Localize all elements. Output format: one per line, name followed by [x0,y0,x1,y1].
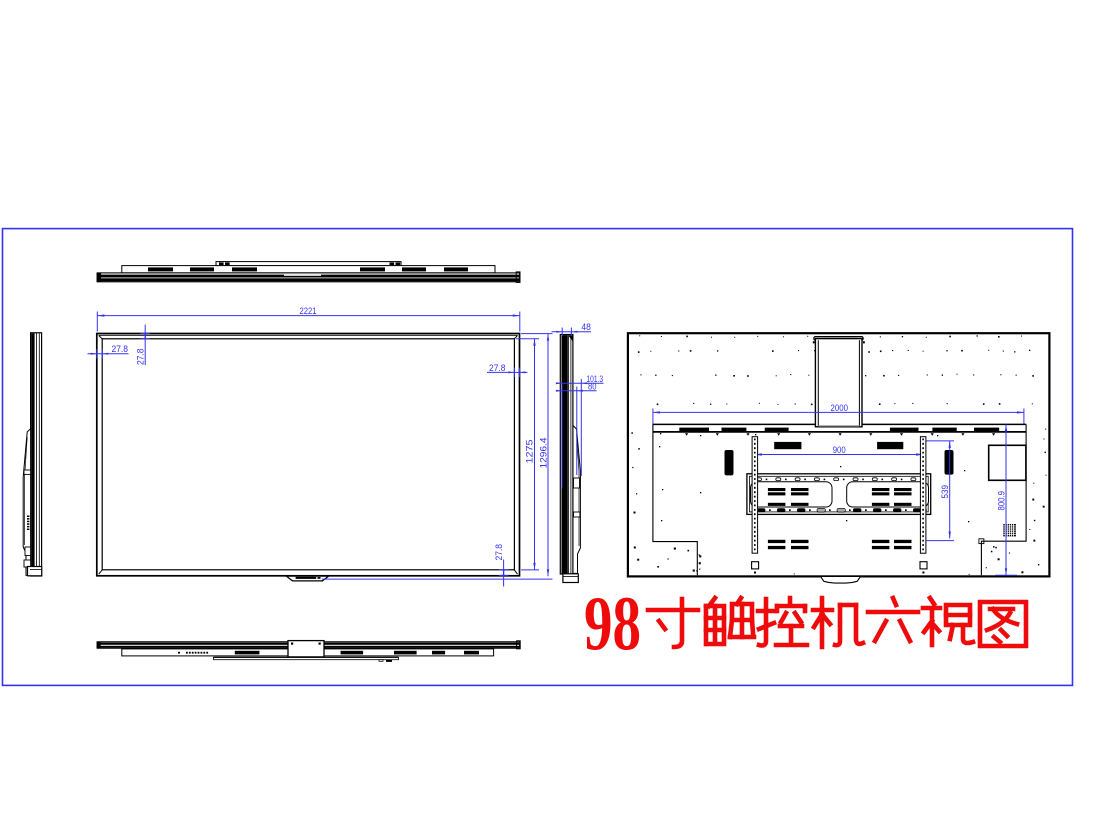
svg-text:1296.4: 1296.4 [538,438,548,469]
svg-text:800.9: 800.9 [996,491,1006,511]
svg-text:27.8: 27.8 [489,363,506,373]
svg-text:2221: 2221 [300,306,317,316]
svg-text:539: 539 [940,485,950,499]
svg-text:27.8: 27.8 [494,544,504,561]
svg-text:48: 48 [581,322,591,332]
svg-text:27.8: 27.8 [112,344,129,354]
svg-text:900: 900 [833,445,846,455]
svg-text:98: 98 [584,580,641,666]
svg-text:2000: 2000 [831,403,849,413]
svg-text:27.8: 27.8 [136,349,146,366]
svg-text:80: 80 [588,381,597,391]
svg-text:1275: 1275 [525,440,535,464]
